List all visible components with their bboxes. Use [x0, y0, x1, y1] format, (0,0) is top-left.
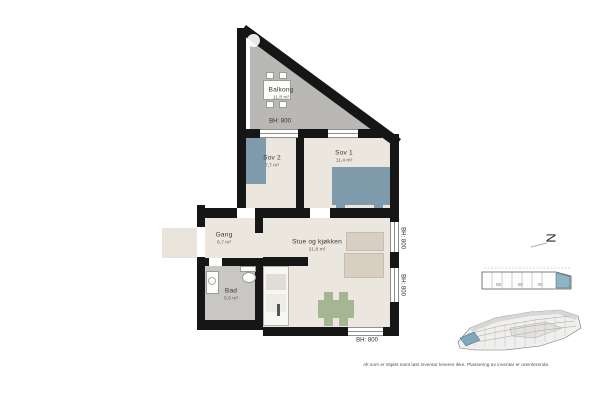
- wall: [296, 133, 304, 211]
- window: [390, 222, 399, 252]
- wall: [222, 258, 263, 266]
- wall: [197, 257, 205, 320]
- room-area: 7,7 m²: [263, 162, 281, 168]
- dining-chair: [339, 318, 348, 326]
- floor-opening-gang-stue: [255, 233, 263, 260]
- room-area: 11,8 m²: [268, 94, 293, 100]
- room-label-sov2: Sov 2 7,7 m²: [263, 153, 281, 168]
- balcony-chair: [279, 72, 287, 79]
- window: [260, 129, 298, 138]
- room-name: Bad: [224, 286, 238, 295]
- wall: [255, 260, 263, 320]
- room-label-bad: Bad 5,5 m²: [224, 286, 238, 301]
- wall: [197, 320, 263, 330]
- dining-table: [318, 300, 354, 318]
- room-area: 5,5 m²: [224, 295, 238, 301]
- room-name: Gang: [216, 230, 233, 239]
- entrance-landing: [162, 228, 197, 258]
- wall: [263, 327, 348, 336]
- toilet: [242, 272, 256, 283]
- balcony-chair: [279, 101, 287, 108]
- north-indicator: N: [544, 233, 559, 242]
- bh-label-balcony: BH: 800: [269, 118, 291, 125]
- floor-plan-page: Balkong 11,8 m² Sov 2 7,7 m² Sov 1 11,4 …: [0, 0, 600, 400]
- room-area: 21,8 m²: [292, 246, 342, 252]
- bh-label-right-lower: BH: 800: [400, 274, 407, 296]
- room-area: 11,4 m²: [335, 157, 353, 163]
- washbasin-bowl: [208, 277, 216, 285]
- room-area: 6,7 m²: [216, 239, 233, 245]
- wall: [197, 258, 209, 266]
- bed-post: [374, 201, 383, 208]
- dining-chair: [324, 292, 333, 300]
- room-label-sov1: Sov 1 11,4 m²: [335, 148, 353, 163]
- window: [328, 129, 358, 138]
- wall: [330, 208, 399, 218]
- dining-chair: [339, 292, 348, 300]
- window: [390, 268, 399, 302]
- room-label-balkong: Balkong 11,8 m²: [268, 85, 293, 100]
- kitchen-appliance: [266, 274, 286, 290]
- kitchen-appliance: [266, 294, 286, 312]
- balcony-chair: [266, 101, 274, 108]
- wall: [255, 218, 263, 233]
- room-label-stue: Stue og kjøkken 21,8 m²: [292, 237, 342, 252]
- bed: [332, 167, 390, 205]
- wall: [263, 257, 308, 266]
- room-name: Balkong: [268, 85, 293, 94]
- room-name: Stue og kjøkken: [292, 237, 342, 246]
- bed-post: [336, 201, 345, 208]
- sofa: [344, 253, 384, 278]
- wall: [237, 28, 246, 208]
- bh-label-bottom: BH: 800: [356, 337, 378, 344]
- wall: [358, 129, 382, 138]
- ceiling-light-icon: [247, 34, 260, 47]
- sideboard: [346, 232, 384, 251]
- room-name: Sov 1: [335, 148, 353, 157]
- window: [348, 327, 383, 336]
- wall: [383, 327, 399, 336]
- footnote: Alt som er stiplet samt løst inventar le…: [363, 362, 549, 367]
- room-label-gang: Gang 6,7 m²: [216, 230, 233, 245]
- kitchen-oven-handle: [277, 304, 280, 316]
- room-name: Sov 2: [263, 153, 281, 162]
- bh-label-right-upper: BH: 800: [400, 227, 407, 249]
- dining-chair: [324, 318, 333, 326]
- balcony-chair: [266, 72, 274, 79]
- wall: [197, 205, 205, 227]
- wall: [246, 129, 260, 138]
- wall: [390, 252, 399, 268]
